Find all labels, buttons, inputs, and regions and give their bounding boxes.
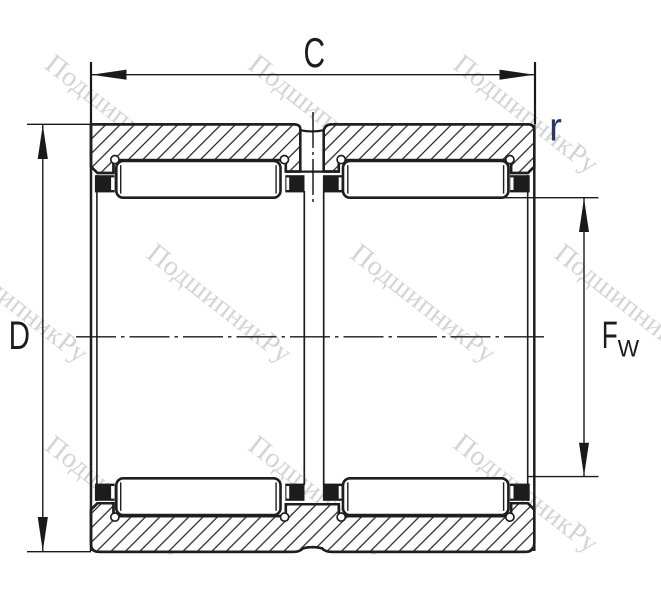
svg-text:ПодшипникРу: ПодшипникРу [141, 238, 298, 370]
svg-text:r: r [549, 106, 562, 150]
svg-text:W: W [618, 335, 640, 362]
svg-text:F: F [602, 313, 618, 356]
svg-text:C: C [304, 29, 326, 76]
svg-text:ПодшипникРу: ПодшипникРу [345, 238, 502, 370]
svg-text:D: D [9, 314, 30, 358]
